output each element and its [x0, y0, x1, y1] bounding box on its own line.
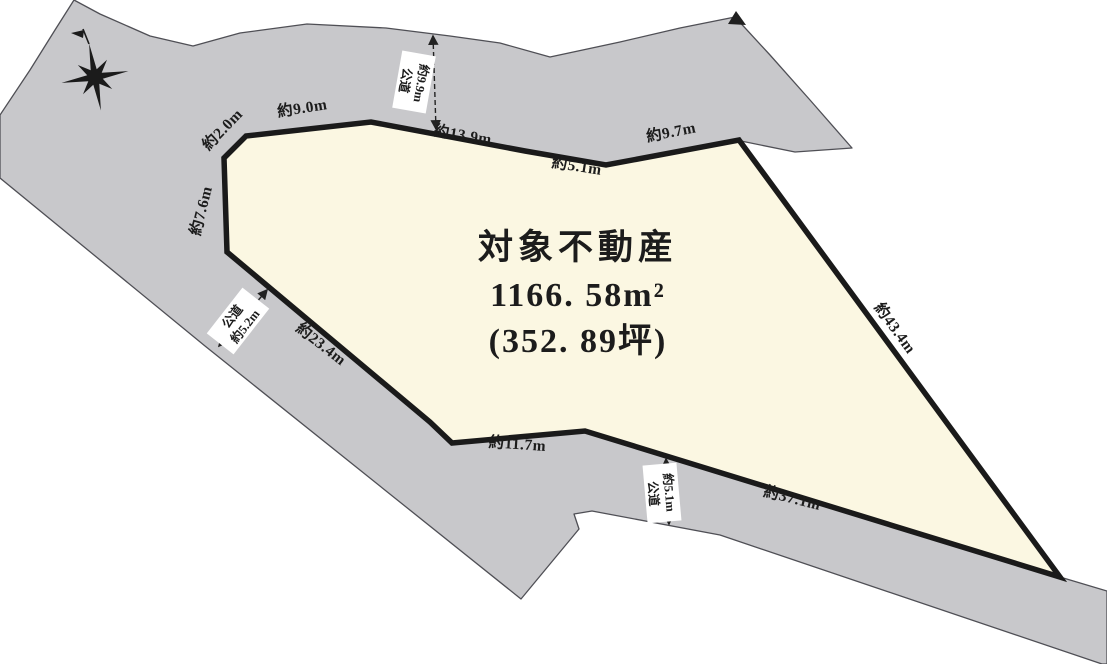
parcel-title: 対象不動産 [478, 228, 678, 267]
parcel-area-m2: 1166. 58m² [490, 277, 666, 314]
road-label-bottom-type: 公道 [645, 481, 662, 508]
land-survey-diagram: 約2.0m 約9.0m 約13.9m 約5.1m 約9.7m 約43.4m 約7… [0, 0, 1107, 664]
land-survey-page: 約2.0m 約9.0m 約13.9m 約5.1m 約9.7m 約43.4m 約7… [0, 0, 1107, 664]
parcel-area-tsubo: (352. 89坪) [489, 322, 668, 360]
road-label-bottom: 公道 約5.1m [643, 463, 682, 524]
